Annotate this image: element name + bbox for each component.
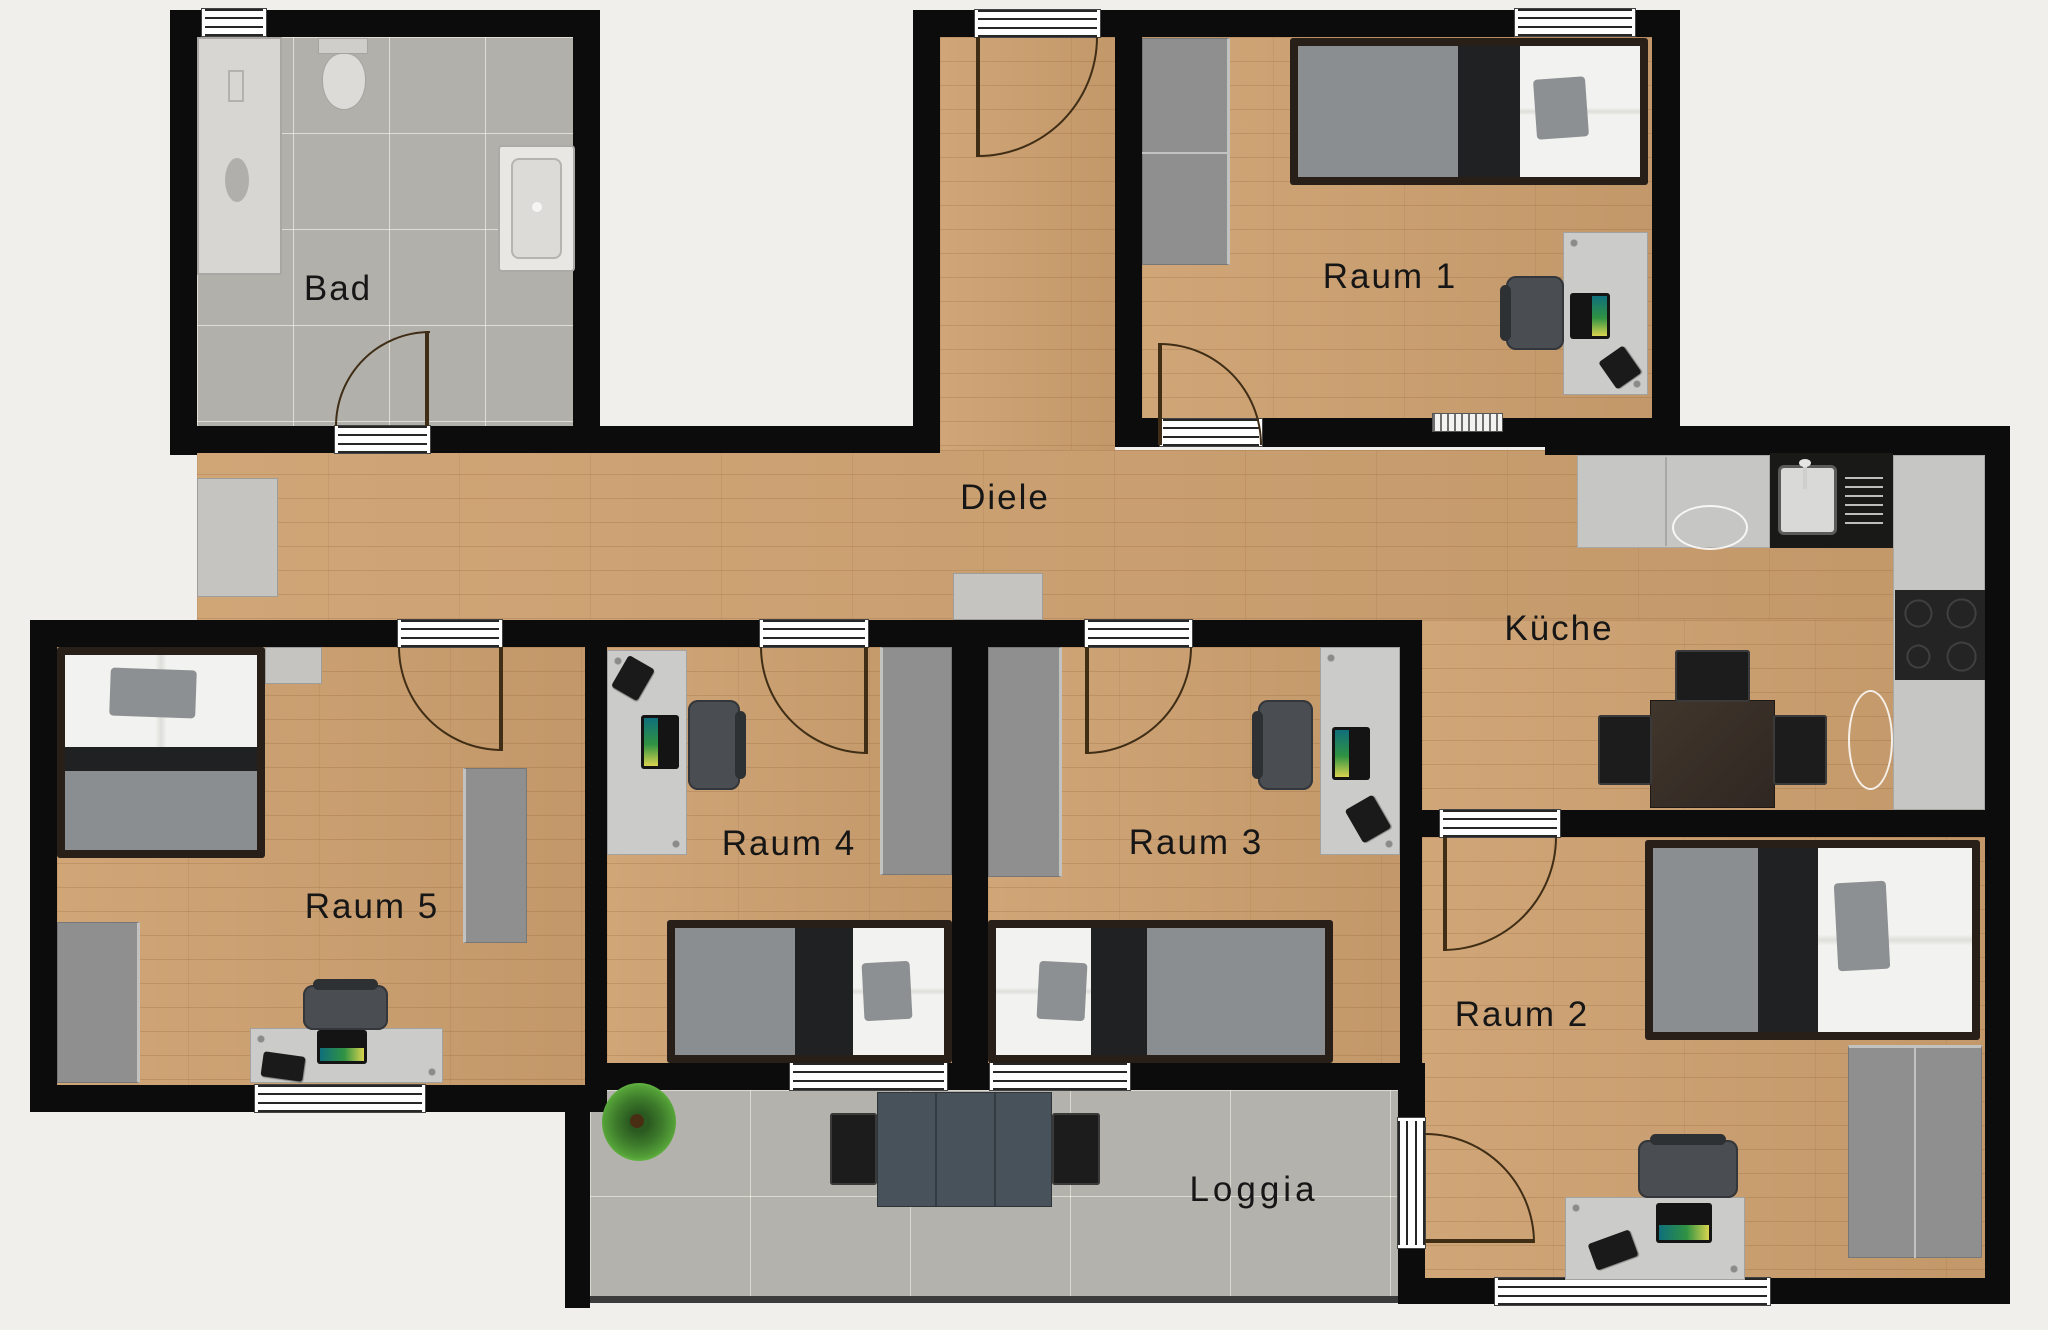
wall-bad-right bbox=[573, 10, 600, 453]
loggia-chair-right bbox=[1052, 1113, 1100, 1185]
bed-mattress bbox=[1147, 928, 1325, 1055]
bed-blanket bbox=[65, 747, 257, 771]
raum4-door-leaf bbox=[864, 647, 868, 754]
raum2-kitchen-door-leaf bbox=[1443, 837, 1447, 951]
bed-mattress bbox=[1653, 848, 1758, 1032]
raum5-bed bbox=[57, 647, 265, 858]
wall-raum3-raum2 bbox=[1400, 647, 1422, 1090]
raum4-door-threshold bbox=[760, 620, 868, 647]
raum2-desk bbox=[1565, 1197, 1745, 1280]
shower-drain bbox=[225, 158, 249, 202]
bed-blanket bbox=[795, 928, 853, 1055]
entrance-door-threshold bbox=[975, 10, 1100, 37]
diele-sideboard-west bbox=[197, 478, 278, 597]
raum5-wardrobe-southwest bbox=[57, 922, 140, 1083]
loggia-plant-center bbox=[630, 1114, 644, 1128]
raum5-wardrobe-east bbox=[463, 768, 527, 943]
bed-cushion bbox=[862, 961, 913, 1021]
raum1-door-leaf bbox=[1158, 343, 1162, 445]
raum5-door-leaf bbox=[499, 647, 503, 751]
raum2-loggia-door-leaf bbox=[1425, 1239, 1533, 1243]
raum2-office-chair bbox=[1638, 1140, 1738, 1198]
kitchen-chair-top bbox=[1675, 650, 1750, 702]
raum3-door-threshold bbox=[1085, 620, 1192, 647]
room-label-raum5: Raum 5 bbox=[305, 887, 440, 927]
bad-window bbox=[202, 9, 266, 36]
kitchen-counter-divider bbox=[1665, 457, 1667, 546]
floor-plan: Bad Diele Raum 1 Küche Raum 2 Raum 3 Rau… bbox=[0, 0, 2048, 1330]
raum4-office-chair bbox=[688, 700, 740, 790]
wall-hall-north bbox=[170, 426, 940, 453]
room-label-raum4: Raum 4 bbox=[722, 824, 857, 864]
raum4-wardrobe bbox=[880, 647, 952, 875]
kitchen-sink-basin bbox=[1778, 465, 1837, 535]
bed-blanket bbox=[1458, 46, 1520, 177]
room-label-raum2: Raum 2 bbox=[1455, 995, 1590, 1035]
raum2-door-threshold bbox=[1440, 810, 1560, 837]
raum5-laptop bbox=[317, 1030, 367, 1064]
cabinet-door-arc-top bbox=[1672, 505, 1748, 550]
loggia-chair-left bbox=[830, 1113, 877, 1185]
toilet-tank bbox=[318, 38, 368, 54]
raum3-window bbox=[990, 1063, 1130, 1090]
kitchen-chair-right bbox=[1773, 715, 1827, 785]
entrance-door-leaf bbox=[976, 37, 980, 157]
room-label-raum3: Raum 3 bbox=[1129, 823, 1264, 863]
raum1-wardrobe-divider bbox=[1142, 152, 1230, 154]
cooktop bbox=[1895, 590, 1985, 680]
kitchen-table bbox=[1650, 700, 1775, 808]
raum3-laptop bbox=[1332, 727, 1370, 780]
wall-raum1-right bbox=[1652, 10, 1680, 453]
bed-cushion bbox=[1037, 961, 1088, 1021]
loggia-edge-line bbox=[590, 1296, 1398, 1303]
room-label-diele: Diele bbox=[960, 478, 1050, 518]
diele-sideboard-mid bbox=[953, 573, 1043, 620]
kitchen-faucet-base bbox=[1799, 459, 1811, 467]
raum5-door-threshold bbox=[398, 620, 502, 647]
room-label-loggia: Loggia bbox=[1189, 1170, 1318, 1210]
bad-door-leaf bbox=[425, 331, 429, 426]
wall-loggia-left bbox=[565, 1085, 590, 1308]
bed-blanket bbox=[1091, 928, 1147, 1055]
bed-cushion bbox=[109, 668, 197, 719]
raum3-office-chair bbox=[1258, 700, 1313, 790]
raum1-window bbox=[1515, 9, 1635, 36]
room-label-raum1: Raum 1 bbox=[1323, 257, 1458, 297]
bed-cushion bbox=[1533, 76, 1589, 139]
bathtub-drain bbox=[532, 202, 542, 212]
cabinet-door-arc-right bbox=[1848, 690, 1893, 790]
toilet-bowl bbox=[322, 53, 366, 110]
wall-kueche-top bbox=[1545, 426, 2010, 455]
raum2-wardrobe-divider bbox=[1914, 1045, 1916, 1258]
raum2-window bbox=[1495, 1278, 1770, 1305]
bad-door-threshold bbox=[335, 426, 430, 453]
room-label-kueche: Küche bbox=[1504, 609, 1613, 649]
bed-blanket bbox=[1758, 848, 1818, 1032]
wall-raum5-west bbox=[30, 620, 57, 1112]
raum3-bed bbox=[988, 920, 1333, 1063]
wall-right-outer bbox=[1985, 426, 2010, 1304]
raum4-laptop bbox=[641, 715, 679, 769]
room-label-bad: Bad bbox=[304, 269, 372, 309]
raum2-bed bbox=[1645, 840, 1980, 1040]
bed-mattress bbox=[1298, 46, 1458, 177]
wall-bad-left bbox=[170, 10, 197, 455]
raum4-window bbox=[790, 1063, 947, 1090]
raum1-bed bbox=[1290, 38, 1648, 185]
loggia-balcony-door-window bbox=[1398, 1118, 1425, 1248]
wall-corridor-right bbox=[1115, 10, 1142, 445]
bed-mattress bbox=[65, 771, 257, 850]
raum4-bed bbox=[667, 920, 952, 1063]
wall-corridor-left bbox=[913, 10, 940, 453]
shower-fixture bbox=[228, 70, 244, 102]
kitchen-chair-left bbox=[1598, 715, 1652, 785]
raum3-wardrobe bbox=[988, 647, 1062, 877]
kitchen-drainer bbox=[1845, 477, 1883, 524]
raum2-laptop bbox=[1656, 1203, 1712, 1243]
wall-raum4-raum3 bbox=[952, 647, 988, 1063]
raum5-office-chair bbox=[303, 985, 388, 1030]
raum1-laptop bbox=[1570, 293, 1610, 339]
loggia-table bbox=[877, 1092, 1052, 1207]
raum5-window bbox=[255, 1085, 425, 1112]
raum3-door-leaf bbox=[1085, 647, 1089, 754]
wall-raum5-raum4 bbox=[585, 647, 607, 1085]
bed-mattress bbox=[675, 928, 795, 1055]
raum1-office-chair bbox=[1506, 276, 1564, 350]
bed-cushion bbox=[1834, 881, 1891, 972]
raum1-radiator bbox=[1432, 413, 1503, 432]
raum5-dresser bbox=[265, 647, 322, 684]
